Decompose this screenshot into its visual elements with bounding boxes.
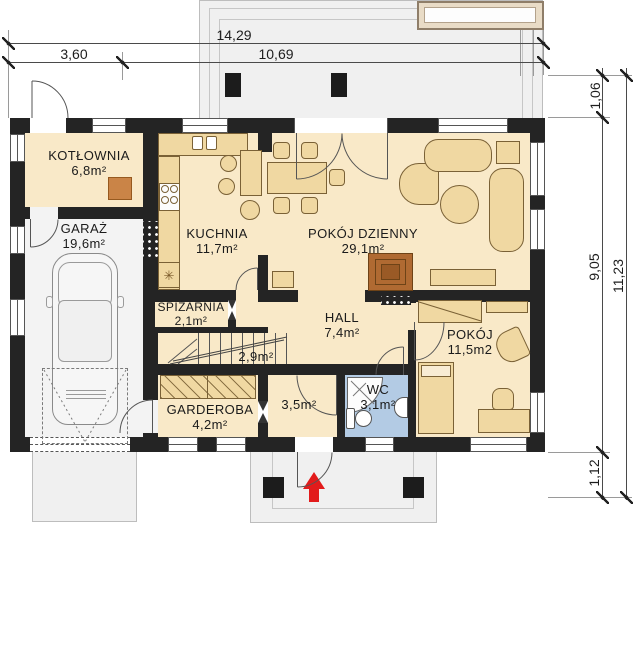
door-symbol-triangle [228, 311, 236, 320]
window-pokoj-east [530, 392, 545, 433]
room-name: SPIŻARNIA [158, 300, 225, 314]
window-kitchen [182, 118, 228, 133]
dim-tick [596, 111, 609, 124]
dim-label-right-total: 11,23 [610, 259, 626, 293]
room-area: 3,5m² [281, 397, 316, 412]
dim-tick [596, 491, 609, 504]
dim-tick [620, 69, 633, 82]
desk [478, 409, 530, 433]
label-hall: HALL7,4m² [324, 310, 359, 341]
side-table [496, 141, 520, 164]
door-arc-wc [376, 347, 404, 375]
doorway-kitchen [236, 290, 258, 302]
wall-stub [258, 255, 268, 302]
driveway [32, 452, 137, 522]
label-kotlownia: KOTŁOWNIA6,8m² [48, 148, 130, 179]
dim-tick [596, 69, 609, 82]
door-symbol-triangle [228, 300, 236, 309]
room-name: POKÓJ [447, 327, 493, 342]
burner-icon [161, 185, 169, 193]
door-arc-kotlownia-garaz [30, 219, 58, 247]
dim-label-seg-left: 3,60 [60, 46, 87, 62]
dim-tick [596, 446, 609, 459]
kitchen-chair [218, 178, 235, 195]
room-name: HALL [325, 310, 359, 325]
porch-pillar [403, 477, 424, 498]
entry-arrow-stem [309, 489, 319, 502]
dim-tick [537, 56, 550, 69]
burner-icon [161, 196, 169, 204]
dining-chair [273, 142, 290, 159]
freezer-glyph: ✳ [164, 268, 175, 283]
tv-cabinet [272, 271, 294, 288]
dim-tick [2, 56, 15, 69]
terrace-pillar [225, 73, 241, 97]
washbasin-icon [394, 397, 408, 418]
dim-value: 14,29 [216, 27, 251, 43]
label-kuchnia: KUCHNIA11,7m² [186, 226, 247, 257]
floor-plan-canvas: ✳ [0, 0, 634, 653]
dim-label-top-total: 14,29 [216, 27, 251, 43]
room-name: POKÓJ DZIENNY [308, 226, 418, 241]
toilet-tank [346, 408, 355, 429]
room-area: 7,4m² [324, 325, 359, 340]
terrace-outline-2 [219, 19, 523, 119]
sink-icon [206, 136, 217, 150]
dining-chair [273, 197, 290, 214]
room-name: KOTŁOWNIA [48, 148, 130, 163]
door-arc-garaz-garderoba [120, 400, 153, 433]
room-area: 3,1m² [360, 397, 395, 412]
label-pokoj-dzienny: POKÓJ DZIENNY29,1m² [308, 226, 418, 257]
dim-value: 10,69 [258, 46, 293, 62]
kitchen-chair [220, 155, 237, 172]
dimension-line-top-segments [8, 62, 543, 63]
room-area: 11,5m2 [448, 342, 493, 357]
window-garderoba [168, 437, 198, 452]
dining-chair [301, 197, 318, 214]
fireplace-core [381, 264, 400, 280]
kitchen-table [240, 150, 262, 196]
dim-value: 3,60 [60, 46, 87, 62]
window-kotlownia-west [10, 134, 25, 162]
dimension-line-top-total [8, 43, 543, 44]
label-pokoj: POKÓJ11,5m2 [447, 327, 493, 358]
window-garaz-west [10, 299, 25, 336]
pillow [421, 365, 451, 377]
dim-label-right-main: 9,05 [586, 253, 602, 280]
room-area: 6,8m² [71, 163, 106, 178]
window-wc [365, 437, 394, 452]
wardrobe-hatched [160, 375, 256, 399]
room-name: KUCHNIA [186, 226, 247, 241]
room-name: GARDEROBA [167, 402, 254, 417]
boiler-icon [108, 177, 132, 200]
car-mirror [46, 296, 53, 308]
window-pokoj-south [470, 437, 527, 452]
kitchen-chair [240, 200, 260, 220]
dim-label-right-lower: 1,12 [586, 459, 602, 486]
corridor-floor [236, 302, 262, 327]
window [92, 118, 126, 133]
dim-tick [116, 56, 129, 69]
porch-pillar [263, 477, 284, 498]
wardrobe-diagonal [418, 300, 482, 323]
room-area: 2,9m² [238, 349, 273, 364]
room-area: 19,6m² [63, 236, 106, 251]
dimension-line-right-outer [626, 68, 627, 500]
car-mirror [117, 296, 124, 308]
dim-tick [620, 491, 633, 504]
awning-support-line [520, 30, 521, 76]
sofa [489, 168, 524, 252]
door-arc-pokoj [414, 322, 444, 360]
terrace-pillar [331, 73, 347, 97]
room-name: GARAŻ [61, 221, 108, 236]
window-living-east [530, 142, 545, 196]
sideboard [430, 269, 496, 286]
dim-label-right-upper: 1,06 [587, 82, 603, 109]
chimney-block [143, 221, 158, 259]
room-area: 4,2m² [192, 417, 227, 432]
window-living-east [530, 209, 545, 250]
label-garderoba: GARDEROBA4,2m² [167, 402, 254, 433]
dim-tick [2, 37, 15, 50]
desk-chair [492, 388, 514, 410]
wardrobe-divider [207, 375, 208, 399]
dim-value: 1,12 [586, 459, 602, 486]
door-arc-french-right [342, 133, 388, 180]
dimension-line-right-inner [602, 68, 603, 500]
car-cabin [58, 300, 112, 362]
burner-icon [170, 196, 178, 204]
door-arc-french-left [296, 133, 342, 180]
radiator-grille [381, 296, 411, 305]
doorway-living-hall [298, 290, 365, 302]
door-arc-entry [297, 452, 332, 487]
label-garaz: GARAŻ19,6m² [61, 221, 108, 252]
awning-inner [424, 7, 536, 23]
window-garaz-west [10, 226, 25, 254]
label-schody: 2,9m² [238, 349, 273, 364]
label-wiatrolap: 3,5m² [281, 397, 316, 412]
label-spizarnia: SPIŻARNIA2,1m² [158, 300, 225, 328]
door-arc-kitchen [236, 268, 258, 291]
french-door-opening [294, 118, 388, 133]
dim-label-seg-right: 10,69 [258, 46, 293, 62]
room-area: 29,1m² [342, 241, 385, 256]
freezer-icon: ✳ [158, 262, 180, 288]
door-opening-kotlownia [30, 118, 66, 133]
room-area: 2,1m² [175, 314, 208, 328]
window-garderoba [216, 437, 246, 452]
room-name: WC [367, 382, 389, 397]
dim-tick [537, 37, 550, 50]
kitchen-counter-top [158, 133, 248, 156]
door-arc-kotlownia-ext [31, 81, 68, 118]
dim-value: 1,06 [587, 82, 603, 109]
porch-outline [272, 452, 414, 509]
room-area: 11,7m² [196, 241, 238, 256]
doorway-kotlownia-garaz [30, 207, 58, 219]
dim-value: 9,05 [586, 253, 602, 280]
burner-icon [170, 185, 178, 193]
door-symbol-triangle [258, 413, 268, 423]
label-wc: WC3,1m² [360, 382, 395, 413]
entry-door-opening [295, 437, 333, 452]
sink-icon [192, 136, 203, 150]
garage-door-guides [42, 368, 128, 445]
sofa [424, 139, 492, 172]
window-living [438, 118, 508, 133]
coffee-table [440, 185, 479, 224]
dim-value: 11,23 [610, 259, 626, 293]
awning-support-line [533, 30, 534, 76]
shelf [486, 301, 528, 313]
door-symbol-triangle [258, 401, 268, 411]
